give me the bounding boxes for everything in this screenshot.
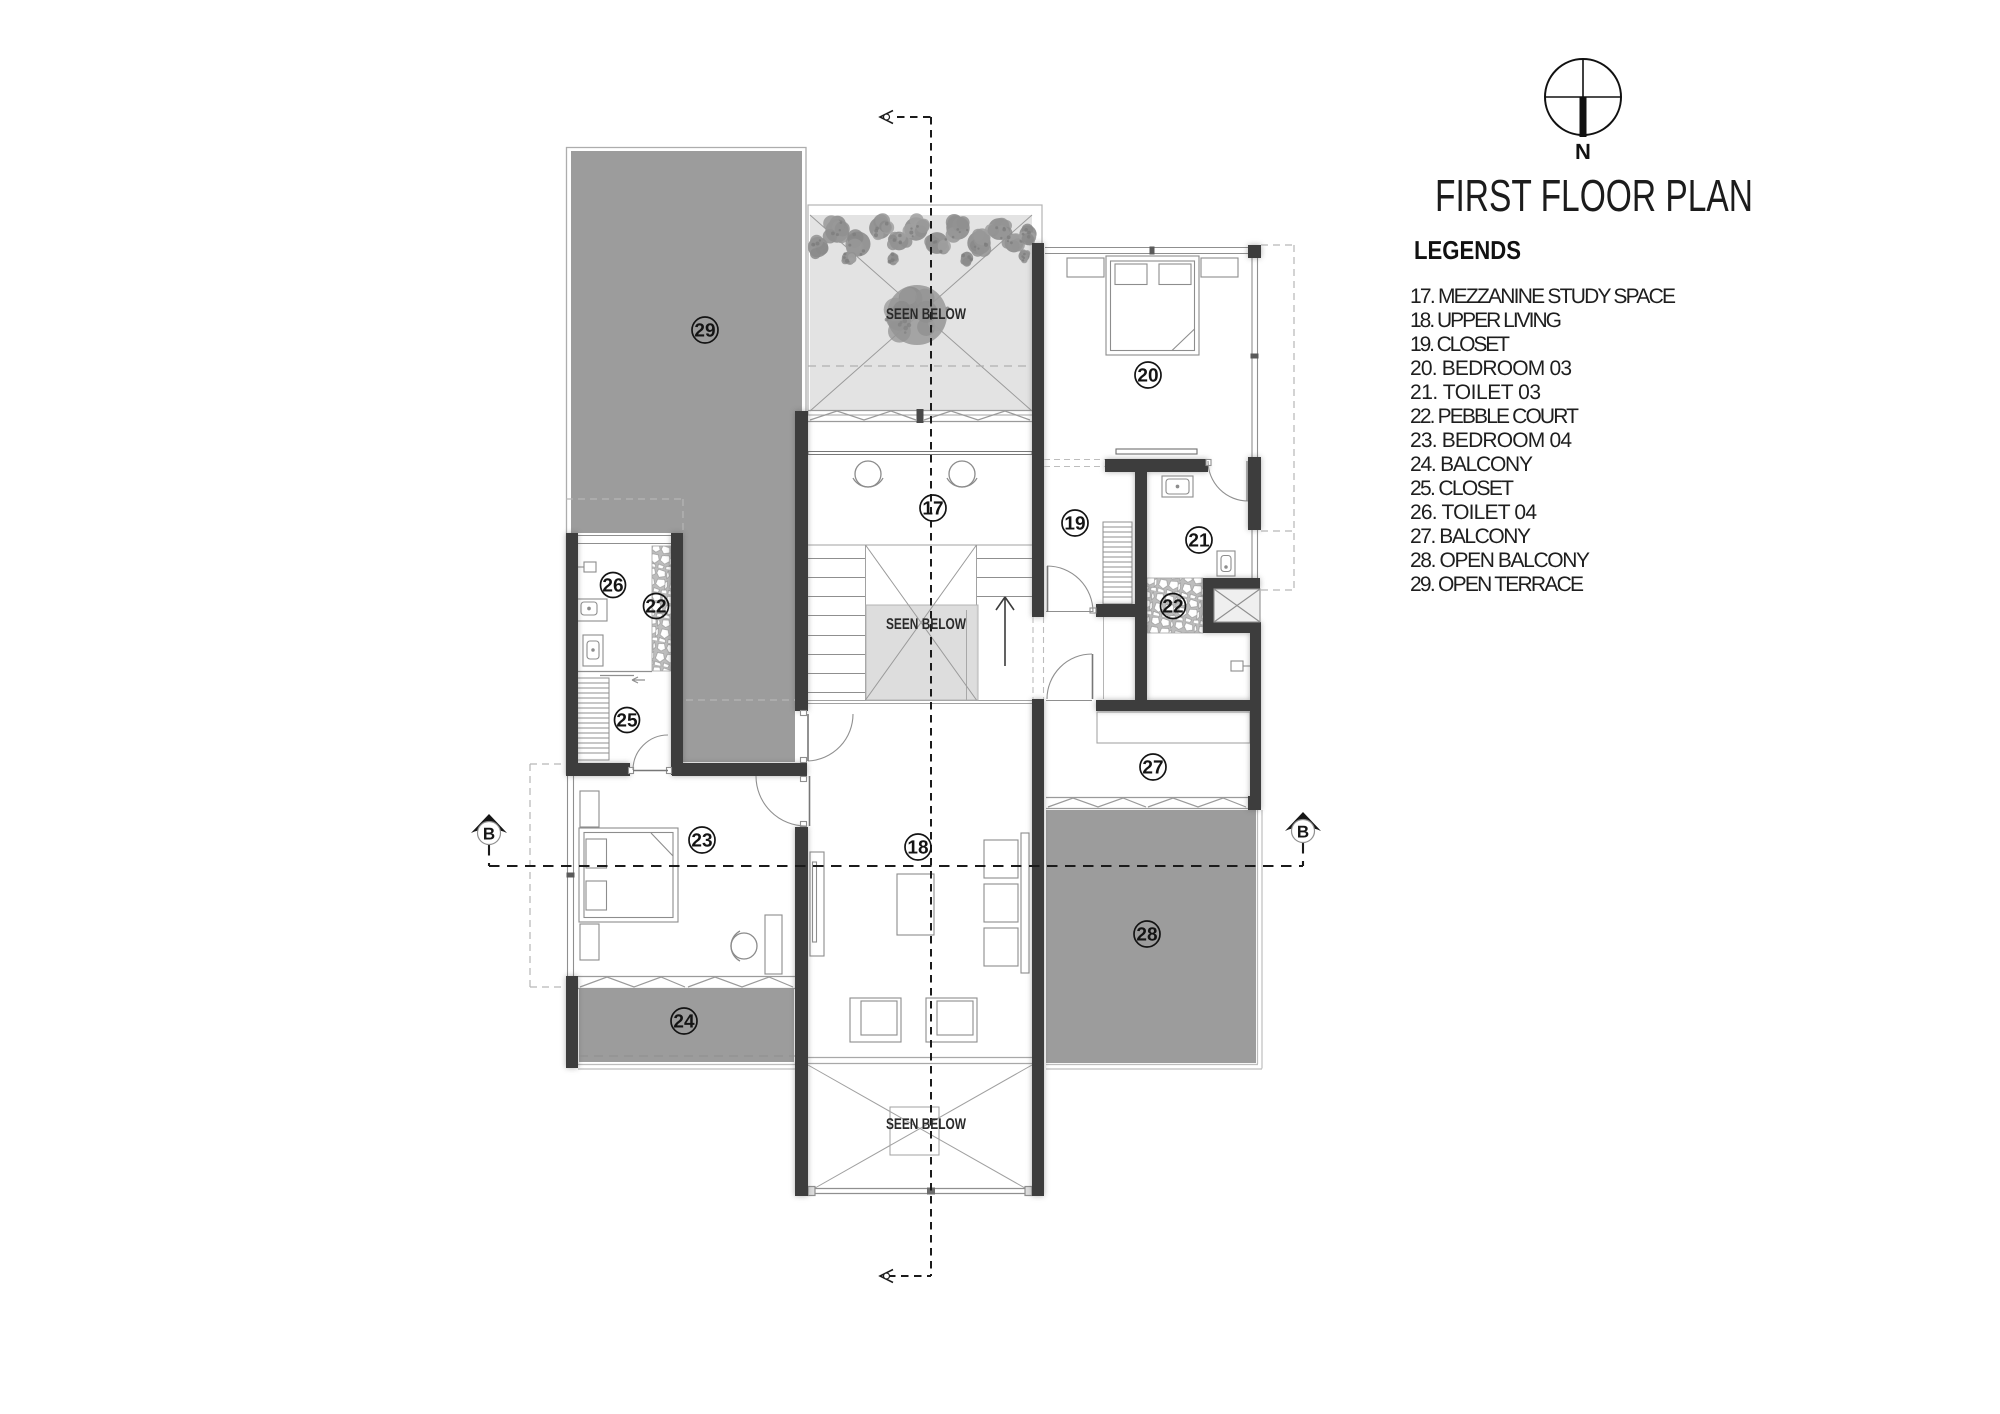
svg-text:22. PEBBLE COURT: 22. PEBBLE COURT bbox=[1410, 405, 1579, 428]
svg-text:18. UPPER LIVING: 18. UPPER LIVING bbox=[1410, 309, 1562, 332]
svg-text:24: 24 bbox=[673, 1012, 695, 1033]
svg-text:26: 26 bbox=[602, 576, 623, 597]
svg-text:26. TOILET 04: 26. TOILET 04 bbox=[1410, 501, 1537, 524]
svg-text:23: 23 bbox=[691, 831, 712, 852]
svg-text:29. OPEN TERRACE: 29. OPEN TERRACE bbox=[1410, 573, 1584, 596]
svg-text:19. CLOSET: 19. CLOSET bbox=[1410, 333, 1510, 356]
svg-text:SEEN BELOW: SEEN BELOW bbox=[886, 306, 966, 323]
svg-text:21. TOILET 03: 21. TOILET 03 bbox=[1410, 381, 1541, 404]
svg-text:B: B bbox=[1297, 823, 1309, 842]
svg-text:22: 22 bbox=[1162, 597, 1183, 618]
svg-text:28: 28 bbox=[1136, 925, 1157, 946]
svg-text:25. CLOSET: 25. CLOSET bbox=[1410, 477, 1514, 500]
svg-text:25: 25 bbox=[616, 711, 638, 732]
svg-text:22: 22 bbox=[645, 597, 666, 618]
svg-text:21: 21 bbox=[1188, 531, 1210, 552]
svg-text:20: 20 bbox=[1137, 366, 1158, 387]
svg-text:28. OPEN BALCONY: 28. OPEN BALCONY bbox=[1410, 549, 1590, 572]
svg-text:24. BALCONY: 24. BALCONY bbox=[1410, 453, 1533, 476]
svg-text:27: 27 bbox=[1142, 758, 1163, 779]
svg-text:SEEN BELOW: SEEN BELOW bbox=[886, 616, 966, 633]
svg-text:SEEN BELOW: SEEN BELOW bbox=[886, 1116, 966, 1133]
svg-text:LEGENDS: LEGENDS bbox=[1414, 235, 1521, 265]
svg-text:20. BEDROOM 03: 20. BEDROOM 03 bbox=[1410, 357, 1572, 380]
svg-text:27. BALCONY: 27. BALCONY bbox=[1410, 525, 1531, 548]
svg-text:17. MEZZANINE STUDY SPACE: 17. MEZZANINE STUDY SPACE bbox=[1410, 285, 1676, 308]
svg-text:23. BEDROOM 04: 23. BEDROOM 04 bbox=[1410, 429, 1572, 452]
svg-text:29: 29 bbox=[694, 321, 715, 342]
svg-text:FIRST FLOOR PLAN: FIRST FLOOR PLAN bbox=[1435, 170, 1753, 221]
svg-text:19: 19 bbox=[1064, 514, 1085, 535]
svg-text:17: 17 bbox=[922, 499, 943, 520]
svg-text:B: B bbox=[483, 825, 495, 844]
svg-text:18: 18 bbox=[907, 838, 928, 859]
svg-text:N: N bbox=[1575, 139, 1591, 164]
